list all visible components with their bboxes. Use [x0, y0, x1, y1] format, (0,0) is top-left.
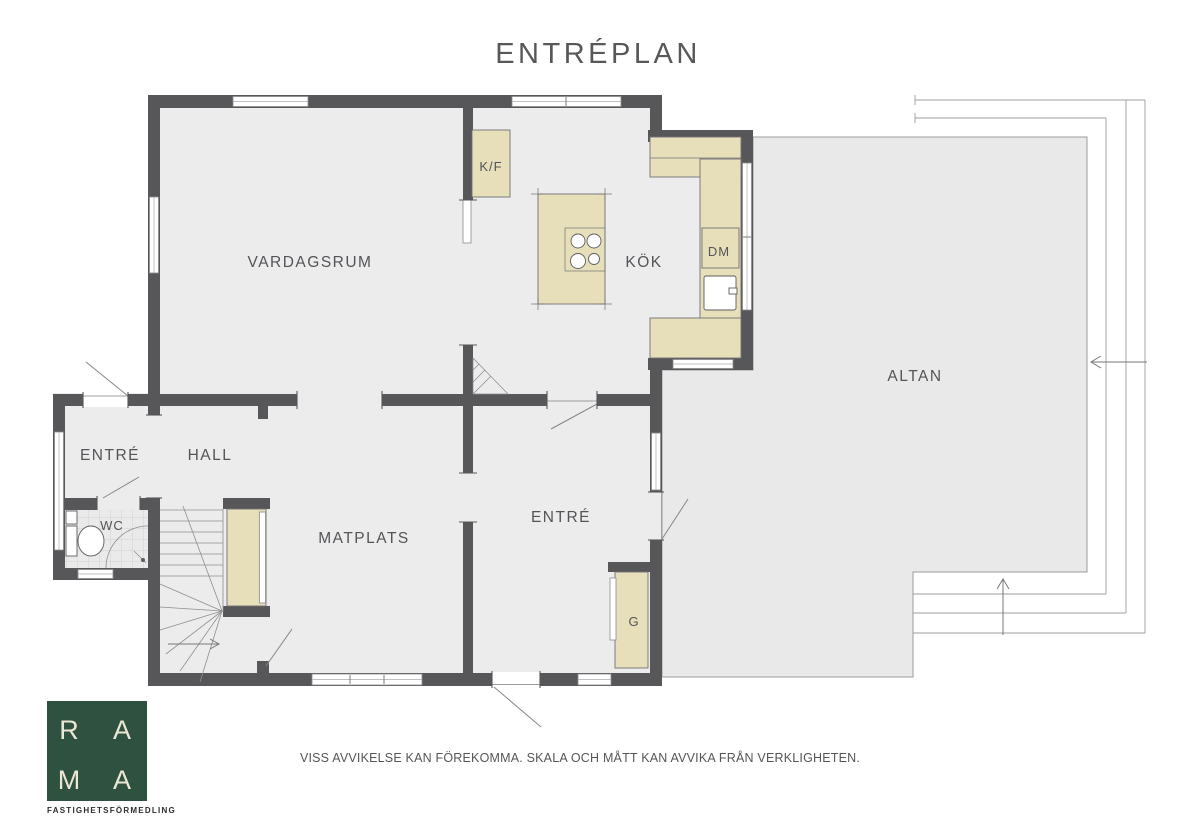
glass-partition — [463, 200, 471, 243]
label-dishwasher: DM — [708, 244, 730, 259]
logo-subtitle: FASTIGHETSFÖRMEDLING — [47, 806, 176, 815]
toilet — [66, 526, 104, 556]
label-matplats: MATPLATS — [318, 530, 410, 547]
label-hall: HALL — [188, 447, 233, 464]
deck-step-arrow-up — [997, 579, 1009, 635]
floor-plan-page: ENTRÉPLAN — [0, 0, 1200, 831]
rama-logo: R A M A FASTIGHETSFÖRMEDLING — [47, 701, 176, 815]
window — [150, 197, 159, 273]
deck-step-arrow-west — [1091, 356, 1147, 368]
label-wardrobe: G — [628, 614, 639, 629]
window — [312, 674, 422, 685]
label-entre-south: ENTRÉ — [531, 509, 591, 526]
window — [78, 570, 113, 579]
logo-letter-a1: A — [113, 715, 131, 745]
disclaimer-text: VISS AVVIKELSE KAN FÖREKOMMA. SKALA OCH … — [300, 750, 860, 765]
window — [233, 97, 308, 107]
faucet — [729, 288, 737, 294]
matplats-closet — [227, 509, 266, 606]
page-title: ENTRÉPLAN — [495, 37, 701, 70]
window — [512, 97, 621, 107]
label-wc: WC — [100, 518, 124, 533]
label-altan: ALTAN — [887, 368, 942, 385]
logo-letter-r: R — [59, 715, 79, 745]
window — [673, 360, 733, 369]
label-kok: KÖK — [625, 253, 662, 271]
window — [743, 163, 752, 310]
kitchen-counter-bottom — [650, 318, 741, 358]
floor-plan-svg: ENTRÉPLAN — [0, 0, 1200, 831]
label-fridge-freezer: K/F — [479, 159, 502, 174]
logo-letter-m: M — [58, 765, 81, 795]
label-vardagsrum: VARDAGSRUM — [248, 254, 373, 271]
label-entre-west: ENTRÉ — [80, 447, 140, 464]
window — [652, 433, 661, 490]
wc-sink — [66, 511, 77, 524]
kitchen-island — [531, 188, 612, 310]
window — [578, 674, 611, 685]
logo-letter-a2: A — [113, 765, 131, 795]
window — [55, 432, 64, 550]
